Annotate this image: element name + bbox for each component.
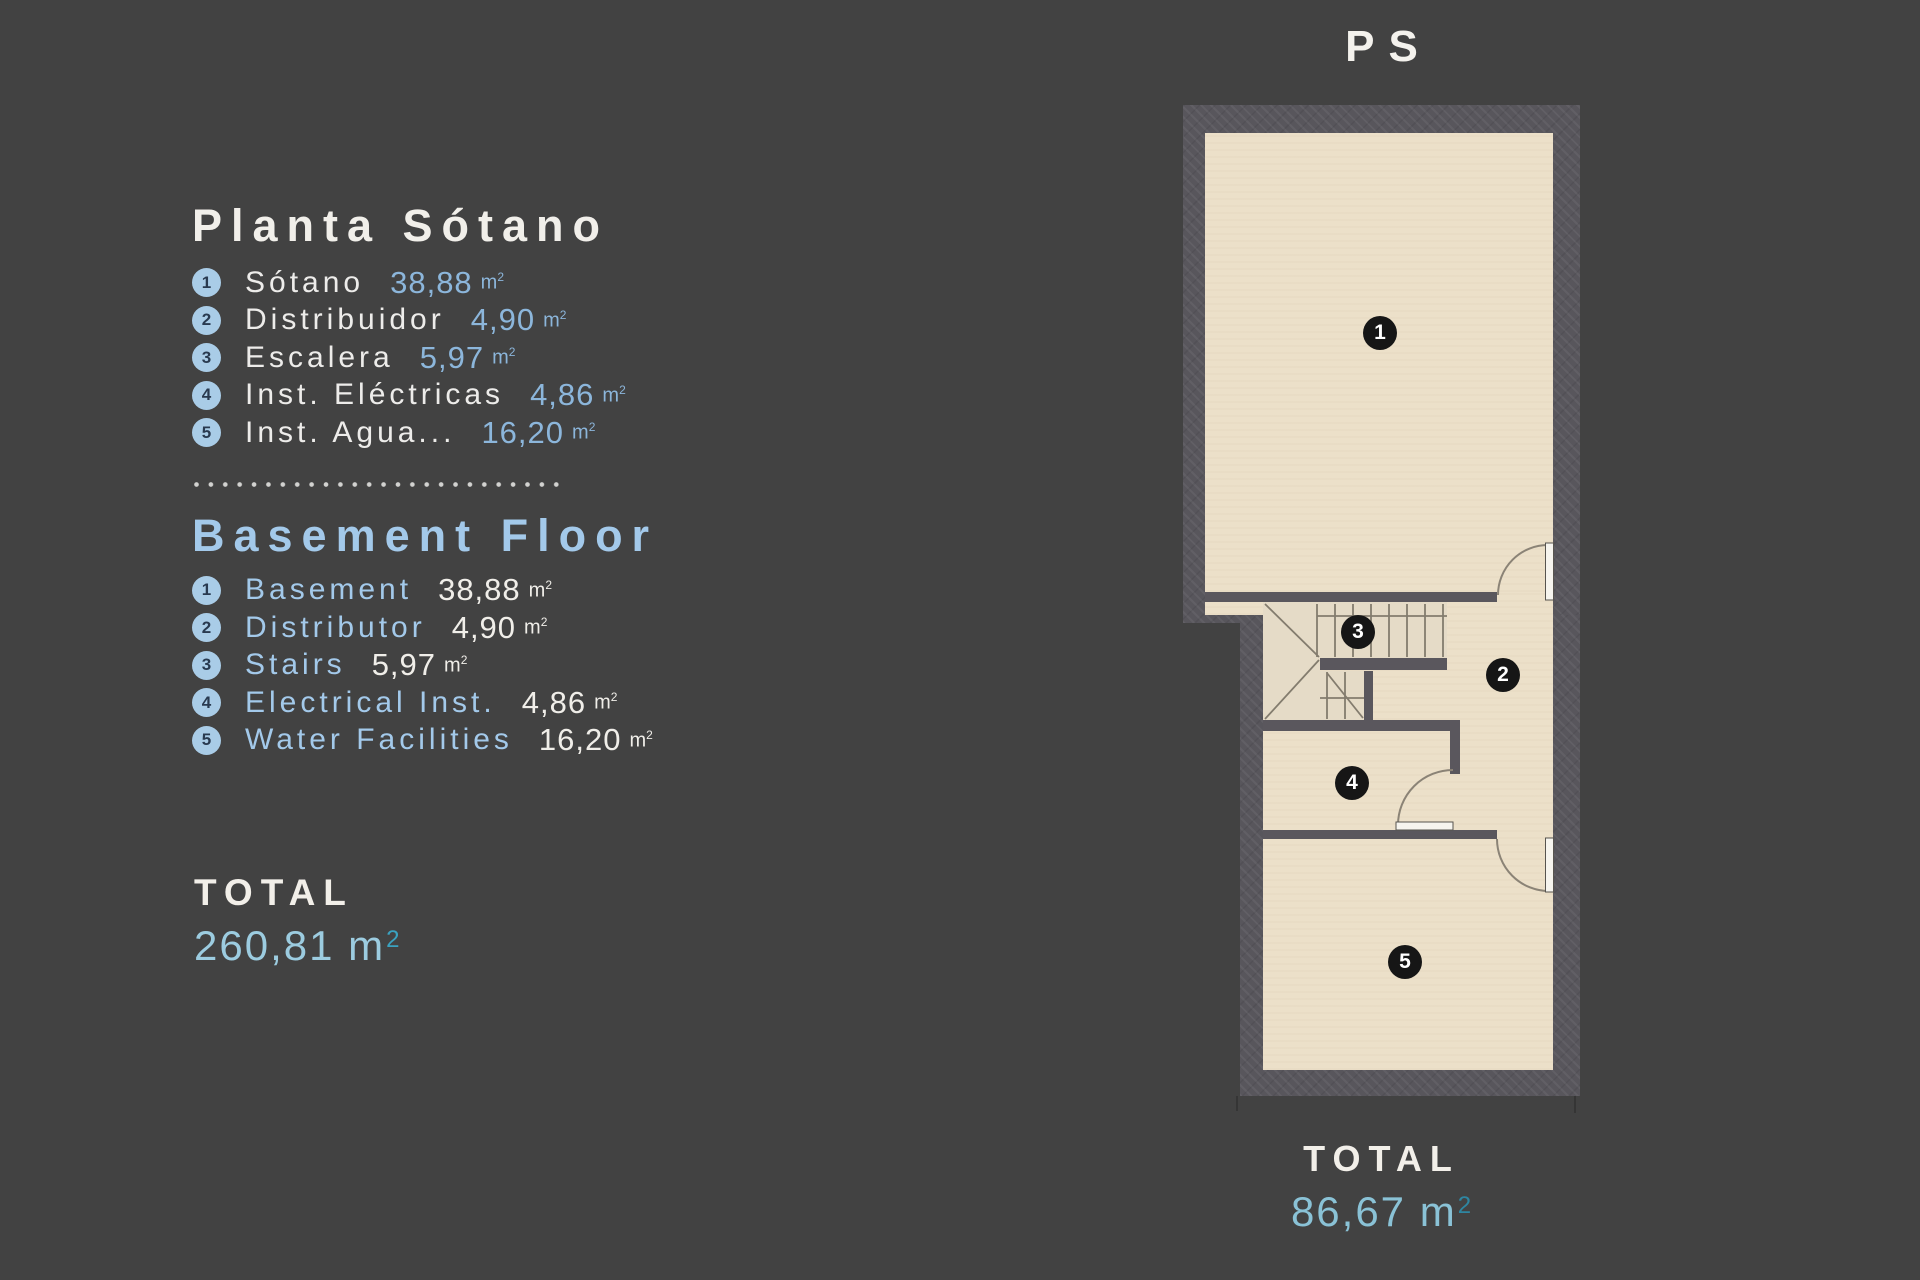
total-label: TOTAL: [194, 872, 400, 914]
legend-row-en-2: 2 Distributor 4,90 m2: [192, 609, 752, 647]
room-marker-1: 1: [1363, 316, 1397, 350]
room-1-area-es: 38,88: [390, 265, 473, 301]
total-floor-area: TOTAL 260,81 m2: [194, 872, 400, 970]
unit-m2: m2: [492, 345, 515, 370]
room-5-area-es: 16,20: [481, 415, 564, 451]
unit-m2: m2: [594, 690, 617, 715]
legend-row-en-1: 1 Basement 38,88 m2: [192, 572, 752, 610]
legend-row-en-3: 3 Stairs 5,97 m2: [192, 647, 752, 685]
room-5-badge: 5: [192, 418, 221, 447]
room-2-label-en: Distributor: [245, 611, 426, 645]
room-marker-5: 5: [1388, 945, 1422, 979]
room-4-badge: 4: [192, 688, 221, 717]
unit-m2: m2: [481, 270, 504, 295]
legend-row-es-2: 2 Distribuidor 4,90 m2: [192, 302, 752, 340]
room-2-badge: 2: [192, 613, 221, 642]
unit-m2: m2: [444, 653, 467, 678]
door-leaves: [1396, 543, 1554, 892]
unit-m2: m2: [572, 420, 595, 445]
room-1-label-es: Sótano: [245, 266, 364, 300]
plan-title-ps: PS: [1183, 22, 1580, 72]
room-3-label-es: Escalera: [245, 341, 394, 375]
legend-row-es-1: 1 Sótano 38,88 m2: [192, 264, 752, 302]
total-value: 260,81 m2: [194, 922, 400, 970]
unit-m2: m2: [543, 308, 566, 333]
total-label: TOTAL: [1183, 1138, 1580, 1180]
room-4-badge: 4: [192, 381, 221, 410]
superscript-2: 2: [1458, 1192, 1473, 1219]
door-swing-arcs: [1398, 545, 1549, 891]
room-1-label-en: Basement: [245, 573, 412, 607]
room-5-label-es: Inst. Agua...: [245, 416, 455, 450]
room-5-badge: 5: [192, 726, 221, 755]
spanish-title: Planta Sótano: [192, 203, 752, 248]
room-4-label-en: Electrical Inst.: [245, 686, 496, 720]
unit-m2: m2: [529, 578, 552, 603]
room-marker-2: 2: [1486, 658, 1520, 692]
legend-row-es-5: 5 Inst. Agua... 16,20 m2: [192, 414, 752, 452]
room-5-area-en: 16,20: [539, 722, 622, 758]
room-1-badge: 1: [192, 576, 221, 605]
plan-linework: [1183, 105, 1580, 1116]
room-2-label-es: Distribuidor: [245, 303, 445, 337]
room-3-area-en: 5,97: [372, 647, 436, 683]
unit-m2: m2: [524, 615, 547, 640]
room-1-badge: 1: [192, 268, 221, 297]
english-title: Basement Floor: [192, 513, 752, 558]
room-marker-4: 4: [1335, 766, 1369, 800]
room-3-label-en: Stairs: [245, 648, 346, 682]
basement-floorplan-sheet: Planta Sótano 1 Sótano 38,88 m2 2 Distri…: [0, 0, 1920, 1280]
room-1-area-en: 38,88: [438, 572, 521, 608]
room-4-area-en: 4,86: [522, 685, 586, 721]
room-marker-3: 3: [1341, 615, 1375, 649]
legend-row-es-3: 3 Escalera 5,97 m2: [192, 339, 752, 377]
unit-m2: m2: [630, 728, 653, 753]
floorplan-drawing: 1 2 3 4 5: [1183, 105, 1580, 1116]
total-value: 86,67 m2: [1183, 1188, 1580, 1236]
unit-m2: m2: [602, 383, 625, 408]
legend-row-en-5: 5 Water Facilities 16,20 m2: [192, 722, 752, 760]
legend-panel: Planta Sótano 1 Sótano 38,88 m2 2 Distri…: [192, 203, 752, 759]
room-2-area-en: 4,90: [452, 610, 516, 646]
room-4-label-es: Inst. Eléctricas: [245, 378, 504, 412]
superscript-2: 2: [386, 926, 401, 953]
room-3-badge: 3: [192, 651, 221, 680]
total-plan-area: TOTAL 86,67 m2: [1183, 1138, 1580, 1236]
legend-row-es-4: 4 Inst. Eléctricas 4,86 m2: [192, 377, 752, 415]
room-2-area-es: 4,90: [471, 302, 535, 338]
room-3-badge: 3: [192, 343, 221, 372]
room-5-label-en: Water Facilities: [245, 723, 513, 757]
dotted-separator: [194, 482, 568, 487]
legend-row-en-4: 4 Electrical Inst. 4,86 m2: [192, 684, 752, 722]
room-4-area-es: 4,86: [530, 377, 594, 413]
room-3-area-es: 5,97: [420, 340, 484, 376]
room-2-badge: 2: [192, 306, 221, 335]
